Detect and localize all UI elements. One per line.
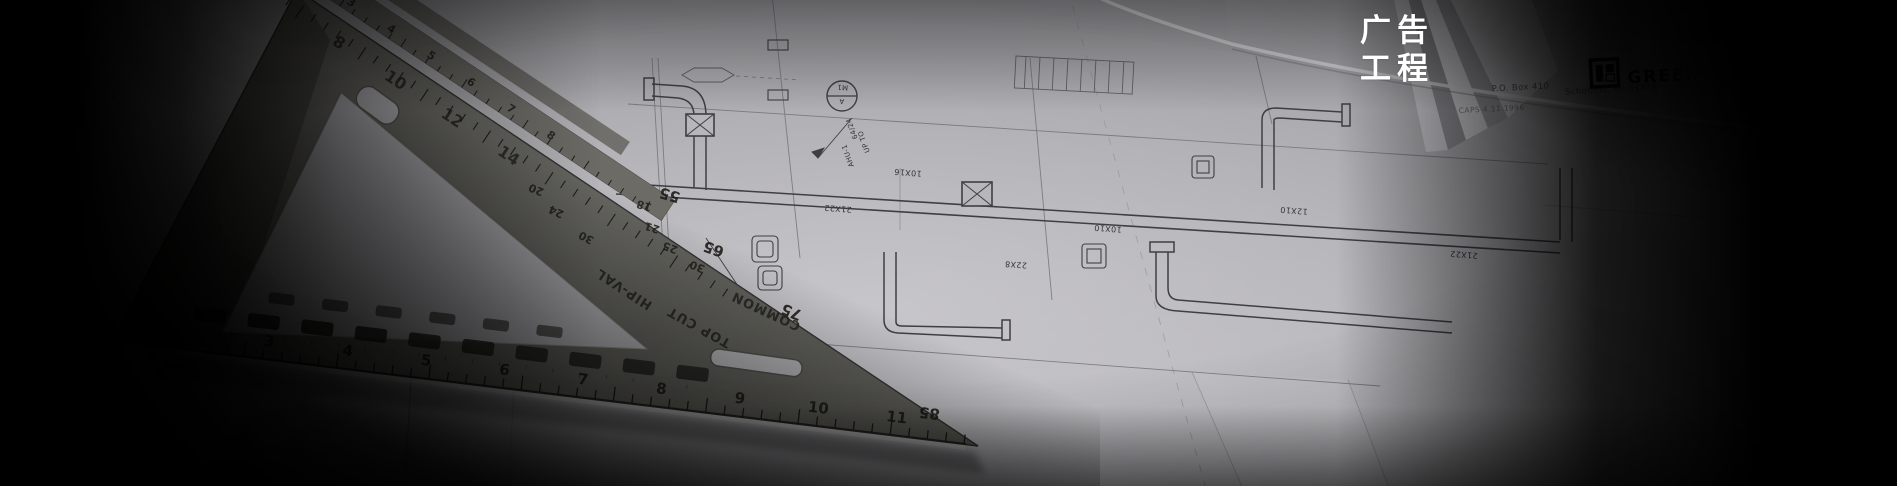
damper-box [686, 114, 714, 136]
hero-banner: P.O. Box 410 Schofield, WI 54476 CAPS 4.… [0, 0, 1897, 486]
duct-label: 22X8 [1004, 259, 1027, 270]
inch-number: 7 [577, 370, 590, 389]
inch-number: 5 [420, 351, 433, 370]
damper-box [962, 182, 992, 206]
overlay-title-line1: 广告 [1360, 12, 1434, 50]
section-marker-top: A [839, 97, 845, 105]
tip-number: 85 [918, 403, 941, 423]
inch-number: 8 [655, 379, 668, 398]
logo-text: GREEN [1627, 64, 1702, 88]
section-marker-bottom: M1 [837, 83, 849, 92]
inch-number: 6 [498, 360, 511, 379]
inch-number: 11 [885, 407, 908, 427]
inch-number: 9 [734, 389, 747, 408]
inch-number: 4 [341, 341, 354, 360]
banner-photo: P.O. Box 410 Schofield, WI 54476 CAPS 4.… [0, 0, 1897, 486]
overlay-title: 广告 工程 [1360, 12, 1434, 88]
inch-number: 10 [807, 398, 830, 418]
inch-number: 3 [263, 332, 276, 351]
overlay-title-line2: 工程 [1360, 50, 1434, 88]
